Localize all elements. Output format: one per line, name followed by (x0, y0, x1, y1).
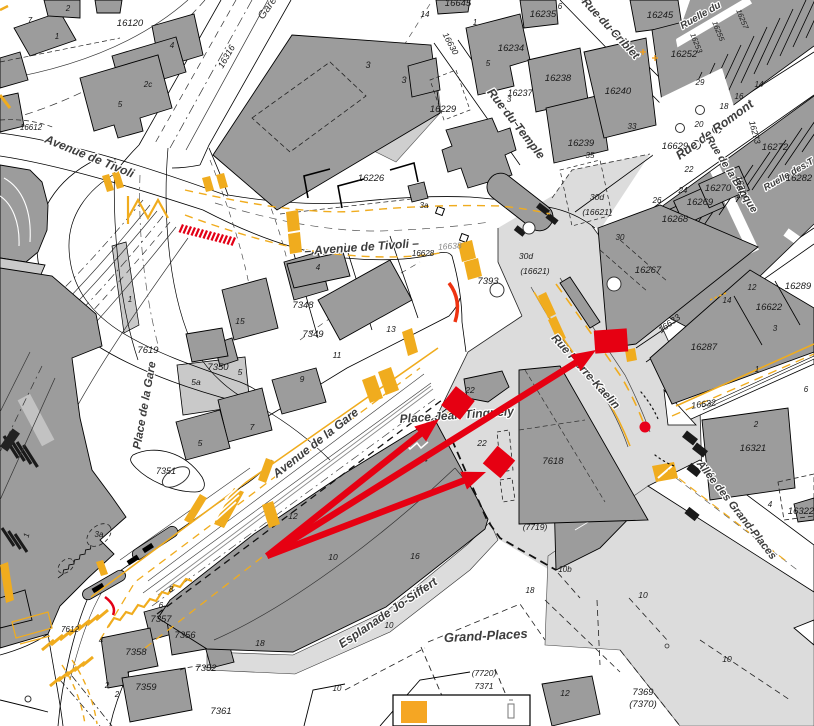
svg-text:16268: 16268 (662, 214, 689, 225)
svg-text:2c: 2c (143, 80, 152, 89)
svg-text:4: 4 (170, 41, 175, 50)
svg-text:7618: 7618 (542, 456, 564, 467)
svg-text:22: 22 (464, 385, 475, 395)
svg-text:16282: 16282 (786, 173, 813, 184)
svg-text:30d: 30d (590, 192, 604, 202)
svg-text:24: 24 (678, 186, 688, 195)
svg-text:16321: 16321 (740, 443, 766, 454)
svg-text:3a: 3a (420, 201, 429, 210)
svg-text:1: 1 (755, 365, 759, 374)
svg-text:35: 35 (586, 151, 595, 160)
svg-text:16322: 16322 (788, 506, 814, 517)
svg-text:6: 6 (159, 601, 164, 610)
svg-text:10: 10 (333, 684, 342, 693)
svg-text:2: 2 (104, 681, 110, 690)
svg-text:7352: 7352 (195, 663, 217, 674)
svg-text:3a: 3a (95, 530, 104, 539)
svg-text:6: 6 (804, 385, 809, 394)
svg-text:16267: 16267 (635, 265, 662, 276)
svg-text:(16621): (16621) (520, 266, 549, 276)
svg-text:16269: 16269 (687, 197, 714, 208)
svg-text:5: 5 (198, 438, 203, 448)
svg-text:30d: 30d (519, 251, 533, 261)
svg-text:16235: 16235 (530, 9, 557, 20)
svg-text:22: 22 (476, 438, 487, 448)
svg-text:7371: 7371 (475, 681, 494, 691)
svg-text:18: 18 (526, 586, 535, 595)
svg-text:10: 10 (638, 590, 648, 600)
svg-text:7393: 7393 (477, 276, 499, 287)
svg-text:8: 8 (169, 585, 174, 594)
svg-text:(7719): (7719) (523, 522, 548, 532)
svg-text:7348: 7348 (292, 300, 314, 311)
svg-text:16645: 16645 (445, 0, 472, 9)
svg-text:16287: 16287 (691, 342, 718, 353)
svg-text:16: 16 (410, 551, 420, 561)
svg-text:22: 22 (684, 165, 694, 174)
svg-text:7358: 7358 (125, 647, 147, 658)
svg-text:4: 4 (768, 500, 773, 509)
svg-text:6: 6 (558, 2, 563, 11)
svg-text:16239: 16239 (568, 138, 595, 149)
svg-text:7356: 7356 (174, 630, 196, 641)
svg-text:(16621): (16621) (582, 207, 611, 217)
svg-text:16272: 16272 (762, 142, 789, 153)
svg-text:14: 14 (723, 296, 732, 305)
svg-text:1: 1 (128, 295, 132, 304)
svg-text:16638: 16638 (438, 240, 463, 252)
svg-text:16289: 16289 (785, 281, 812, 292)
svg-text:1: 1 (55, 32, 59, 41)
svg-text:12: 12 (748, 283, 757, 292)
svg-text:18: 18 (720, 102, 729, 111)
svg-text:3: 3 (507, 95, 512, 104)
svg-text:26: 26 (652, 196, 662, 205)
svg-text:14: 14 (755, 80, 764, 89)
svg-text:16270: 16270 (705, 183, 732, 194)
svg-text:4: 4 (316, 263, 321, 272)
svg-text:16237: 16237 (507, 88, 533, 98)
svg-text:7: 7 (28, 16, 33, 25)
svg-text:7369: 7369 (632, 687, 654, 698)
svg-text:2: 2 (753, 420, 759, 429)
svg-text:16628: 16628 (412, 249, 435, 258)
svg-text:(7720): (7720) (472, 668, 497, 678)
svg-text:16245: 16245 (647, 10, 674, 21)
svg-text:16226: 16226 (358, 173, 385, 184)
svg-text:16120: 16120 (117, 18, 144, 29)
svg-text:14: 14 (421, 10, 430, 19)
svg-text:3: 3 (365, 60, 370, 70)
svg-text:7350: 7350 (207, 362, 229, 373)
svg-text:7361: 7361 (210, 706, 231, 717)
svg-text:7351: 7351 (156, 466, 176, 476)
svg-text:16: 16 (735, 92, 744, 101)
svg-text:2: 2 (65, 4, 71, 13)
svg-text:13: 13 (386, 324, 396, 334)
svg-text:5: 5 (238, 367, 243, 377)
svg-text:16240: 16240 (605, 86, 632, 97)
svg-text:3: 3 (773, 324, 778, 333)
svg-text:7: 7 (250, 422, 255, 432)
svg-text:11: 11 (333, 350, 342, 360)
svg-text:20: 20 (694, 120, 704, 129)
svg-text:10b: 10b (558, 565, 572, 574)
svg-text:15: 15 (235, 316, 245, 326)
svg-text:16622: 16622 (756, 302, 783, 313)
svg-text:(7370): (7370) (629, 699, 656, 710)
svg-text:7612: 7612 (61, 625, 79, 634)
svg-text:33: 33 (628, 122, 637, 131)
svg-text:18: 18 (255, 638, 265, 648)
svg-text:10: 10 (385, 621, 394, 630)
svg-text:29: 29 (695, 78, 705, 87)
svg-text:5a: 5a (191, 377, 201, 387)
svg-text:16252: 16252 (671, 49, 698, 60)
svg-text:10: 10 (722, 654, 732, 664)
svg-text:5: 5 (486, 59, 491, 68)
svg-text:2: 2 (114, 690, 120, 699)
svg-text:7349: 7349 (302, 329, 324, 340)
svg-text:7357: 7357 (150, 614, 172, 625)
svg-text:9: 9 (300, 374, 305, 384)
svg-text:16234: 16234 (498, 43, 524, 54)
svg-text:16229: 16229 (430, 104, 457, 115)
svg-text:7359: 7359 (135, 682, 157, 693)
svg-text:4: 4 (99, 636, 104, 645)
svg-text:16629: 16629 (662, 141, 689, 152)
svg-text:10: 10 (328, 552, 338, 562)
svg-text:12: 12 (560, 688, 570, 698)
svg-text:16238: 16238 (545, 73, 572, 84)
svg-text:12: 12 (288, 511, 298, 521)
svg-text:30: 30 (616, 233, 625, 242)
svg-text:5: 5 (118, 100, 123, 109)
svg-text:7619: 7619 (137, 345, 159, 356)
svg-text:3: 3 (401, 75, 406, 85)
svg-text:1: 1 (473, 18, 477, 27)
svg-text:16612: 16612 (20, 123, 43, 132)
